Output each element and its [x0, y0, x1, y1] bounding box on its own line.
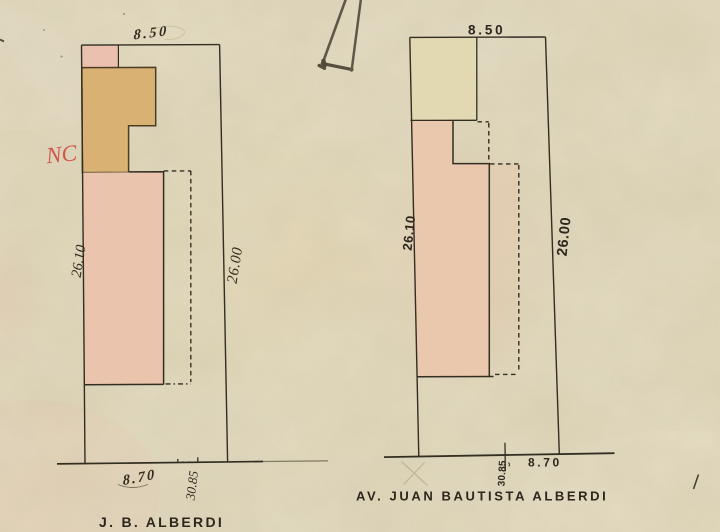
svg-text:8.70: 8.70 [528, 456, 562, 470]
svg-text:J. B. ALBERDI: J. B. ALBERDI [99, 514, 224, 530]
svg-text:NC: NC [44, 140, 79, 168]
svg-text:8.50: 8.50 [468, 23, 505, 38]
svg-text:30.85: 30.85 [497, 460, 509, 487]
svg-text:AV. JUAN BAUTISTA ALBERDI: AV. JUAN BAUTISTA ALBERDI [356, 489, 608, 504]
